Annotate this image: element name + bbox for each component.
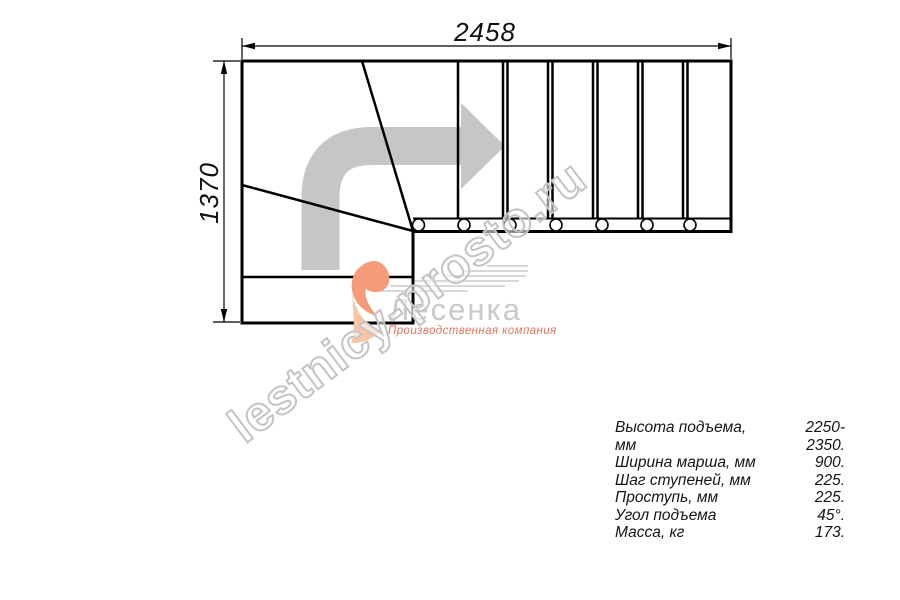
width-dimension-label: 2458 — [400, 17, 570, 48]
spec-value: 900. — [815, 454, 845, 472]
spec-label: Масса, кг — [615, 524, 684, 542]
spec-value: 45°. — [817, 507, 845, 525]
spec-row: Угол подъема 45°. — [615, 507, 845, 525]
baluster-circle — [413, 219, 425, 231]
stair-drawing-page: 2458 1370 Лесенка Производственная компа… — [0, 0, 900, 600]
baluster-circle — [596, 219, 608, 231]
spec-value: 225. — [815, 472, 845, 490]
specs-list: Высота подъема, мм 2250-2350. Ширина мар… — [615, 419, 845, 542]
spec-value: 2250-2350. — [768, 419, 845, 454]
spec-label: Проступь, мм — [615, 489, 718, 507]
spec-row: Шаг ступеней, мм 225. — [615, 472, 845, 490]
spec-row: Высота подъема, мм 2250-2350. — [615, 419, 845, 454]
spec-row: Масса, кг 173. — [615, 524, 845, 542]
spec-label: Ширина марша, мм — [615, 454, 756, 472]
baluster-circle — [641, 219, 653, 231]
spec-label: Высота подъема, мм — [615, 419, 768, 454]
height-dimension-label: 1370 — [194, 133, 222, 253]
spec-label: Шаг ступеней, мм — [615, 472, 751, 490]
spec-label: Угол подъема — [615, 507, 716, 525]
spec-row: Проступь, мм 225. — [615, 489, 845, 507]
baluster-circle — [684, 219, 696, 231]
spec-value: 173. — [815, 524, 845, 542]
spec-row: Ширина марша, мм 900. — [615, 454, 845, 472]
spec-value: 225. — [815, 489, 845, 507]
